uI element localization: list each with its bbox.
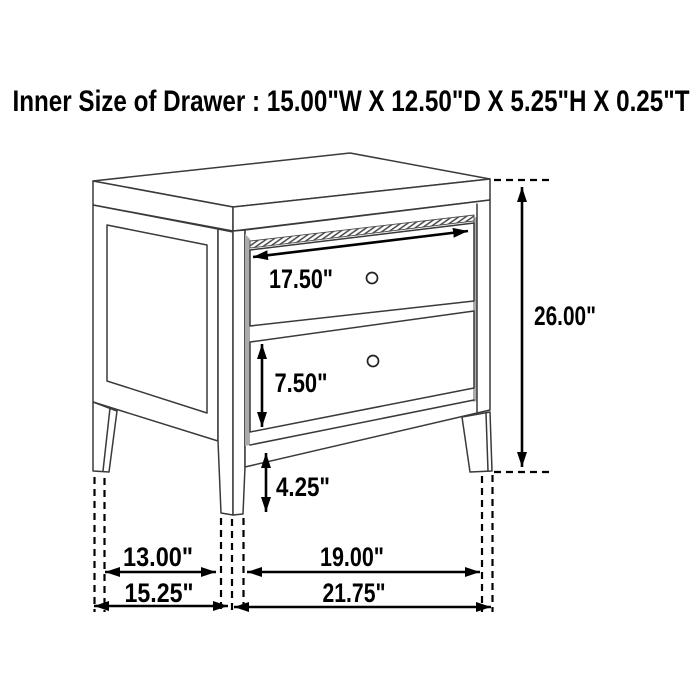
label-top-drawer-width: 17.50" xyxy=(269,264,333,294)
label-overall-height: 26.00" xyxy=(534,301,596,331)
label-overall-width: 21.75" xyxy=(323,578,386,608)
top-drawer-knob xyxy=(367,273,378,284)
bottom-drawer-knob xyxy=(368,356,379,367)
label-front-inner-span: 19.00" xyxy=(320,542,384,572)
back-left-leg xyxy=(93,402,117,472)
diagram-canvas: Inner Size of Drawer : 15.00"W X 12.50"D… xyxy=(0,0,700,700)
label-overall-depth: 15.25" xyxy=(125,578,194,608)
label-bottom-drawer-height: 7.50" xyxy=(275,368,328,398)
label-side-inner-span: 13.00" xyxy=(123,542,193,572)
furniture-dimension-diagram: Inner Size of Drawer : 15.00"W X 12.50"D… xyxy=(0,0,700,700)
back-right-leg xyxy=(462,412,492,472)
label-leg-height: 4.25" xyxy=(276,472,330,502)
diagram-title: Inner Size of Drawer : 15.00"W X 12.50"D… xyxy=(13,85,690,118)
front-corner-post xyxy=(218,229,245,515)
side-panel xyxy=(93,205,218,441)
